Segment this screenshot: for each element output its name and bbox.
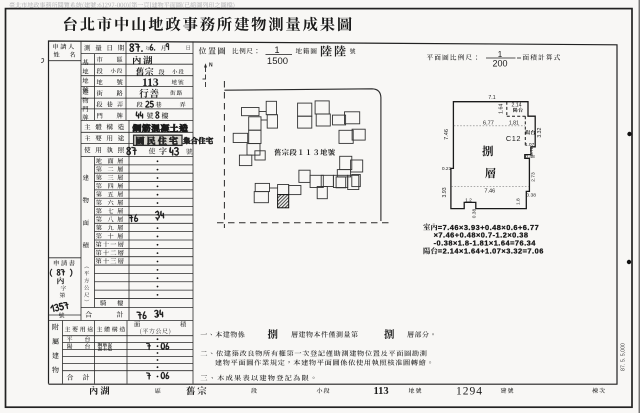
- svg-text:0.48: 0.48: [525, 154, 535, 160]
- svg-text:0.21: 0.21: [442, 166, 452, 172]
- svg-text:200: 200: [492, 59, 507, 69]
- svg-text:1.2: 1.2: [465, 198, 472, 204]
- svg-text:6.77: 6.77: [483, 120, 494, 126]
- svg-text:1: 1: [498, 50, 503, 59]
- svg-text:113: 113: [374, 386, 389, 397]
- svg-text:2.14: 2.14: [511, 102, 521, 108]
- svg-text:1294: 1294: [456, 385, 483, 397]
- svg-text:1.64: 1.64: [499, 104, 505, 114]
- svg-text:0.38: 0.38: [526, 192, 536, 198]
- svg-text:1: 1: [274, 45, 279, 55]
- svg-text:87. 5. 5,000: 87. 5. 5,000: [621, 343, 627, 371]
- svg-text:7.46: 7.46: [444, 129, 450, 140]
- svg-text:C12: C12: [506, 134, 521, 143]
- svg-text:=2.14×1.64+1.07×3.32=7.06: =2.14×1.64+1.07×3.32=7.06: [438, 247, 544, 256]
- svg-text:1500: 1500: [267, 56, 288, 67]
- svg-text:0.38: 0.38: [471, 208, 477, 218]
- svg-text:7.1: 7.1: [488, 95, 495, 101]
- svg-text:3.93: 3.93: [442, 187, 448, 197]
- svg-text:N: N: [209, 63, 213, 69]
- svg-text:1.81: 1.81: [509, 120, 519, 126]
- svg-text:7.46: 7.46: [484, 189, 495, 195]
- svg-text:1.8: 1.8: [516, 198, 522, 205]
- svg-text:3.32: 3.32: [537, 127, 543, 137]
- svg-text:113: 113: [142, 77, 159, 89]
- svg-text:2.73: 2.73: [531, 172, 537, 182]
